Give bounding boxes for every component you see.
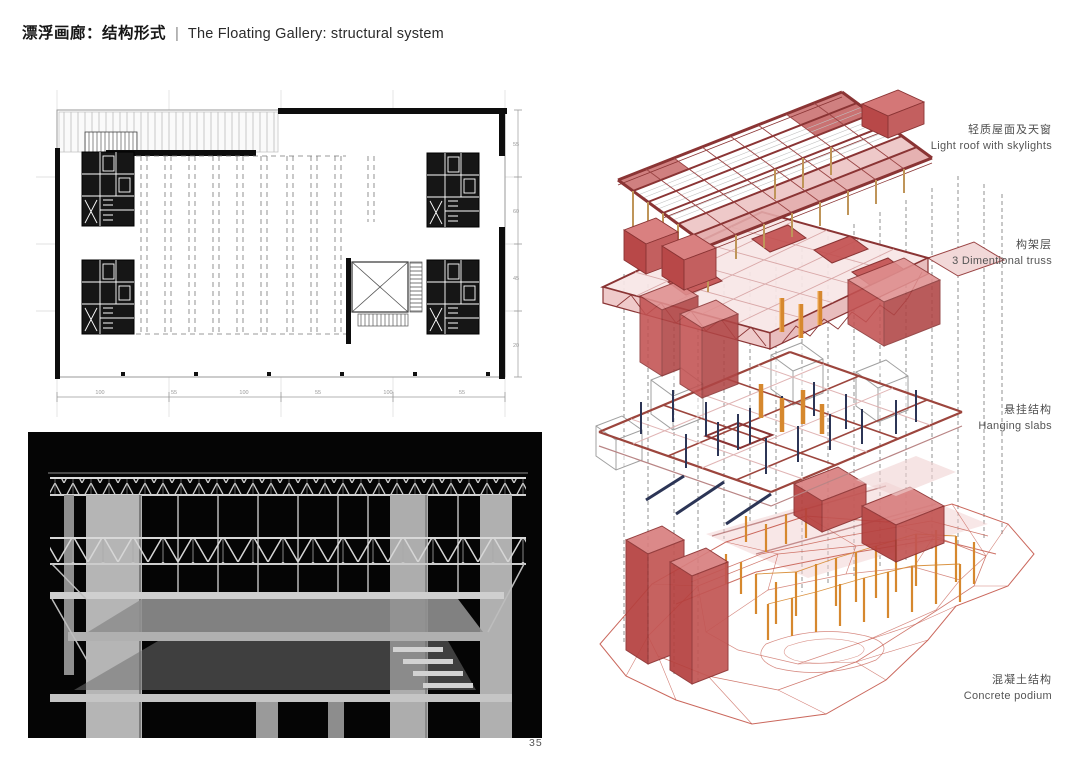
structural-section-figure xyxy=(28,432,542,738)
label-light-roof-zh: 轻质屋面及天窗 xyxy=(931,121,1052,137)
label-truss-zh: 构架层 xyxy=(952,236,1052,252)
label-light-roof: 轻质屋面及天窗 Light roof with skylights xyxy=(931,121,1052,152)
label-truss-en: 3 Dimentional truss xyxy=(952,255,1052,267)
roof-plan-drawing: 100 55 100 55 100 55 55 60 45 20 xyxy=(28,82,522,423)
label-concrete-podium-en: Concrete podium xyxy=(964,690,1052,702)
svg-text:55: 55 xyxy=(171,390,177,396)
svg-text:55: 55 xyxy=(513,142,519,148)
svg-text:45: 45 xyxy=(513,276,519,282)
plan-core-bottom-right xyxy=(427,260,479,334)
svg-text:55: 55 xyxy=(315,390,321,396)
label-hanging-slabs-zh: 悬挂结构 xyxy=(978,401,1052,417)
roof-plan-figure: 100 55 100 55 100 55 55 60 45 20 xyxy=(28,82,522,423)
plan-right-dimension-line: 55 60 45 20 xyxy=(513,110,522,377)
title-english: The Floating Gallery: structural system xyxy=(188,26,444,42)
page-number: 35 xyxy=(529,737,543,749)
label-hanging-slabs: 悬挂结构 Hanging slabs xyxy=(978,401,1052,432)
presentation-page: 漂浮画廊：结构形式 | The Floating Gallery: struct… xyxy=(0,0,1080,764)
svg-text:55: 55 xyxy=(459,390,465,396)
label-truss: 构架层 3 Dimentional truss xyxy=(952,236,1052,267)
plan-core-top-right xyxy=(427,153,479,227)
plan-roof-hatch xyxy=(59,112,278,152)
svg-text:100: 100 xyxy=(95,390,104,396)
svg-text:20: 20 xyxy=(513,343,519,349)
plan-core-bottom-left xyxy=(82,260,134,334)
structural-section-render xyxy=(28,432,542,738)
render-mid-truss xyxy=(50,538,526,564)
svg-text:100: 100 xyxy=(239,390,248,396)
label-light-roof-en: Light roof with skylights xyxy=(931,140,1052,152)
label-concrete-podium-zh: 混凝土结构 xyxy=(964,671,1052,687)
plan-core-top-left xyxy=(82,152,134,226)
svg-text:100: 100 xyxy=(383,390,392,396)
svg-text:60: 60 xyxy=(513,209,519,215)
title-separator: | xyxy=(175,25,179,42)
label-hanging-slabs-en: Hanging slabs xyxy=(978,420,1052,432)
page-title: 漂浮画廊：结构形式 | The Floating Gallery: struct… xyxy=(22,21,444,43)
label-concrete-podium: 混凝土结构 Concrete podium xyxy=(964,671,1052,702)
title-chinese: 漂浮画廊：结构形式 xyxy=(22,21,166,43)
